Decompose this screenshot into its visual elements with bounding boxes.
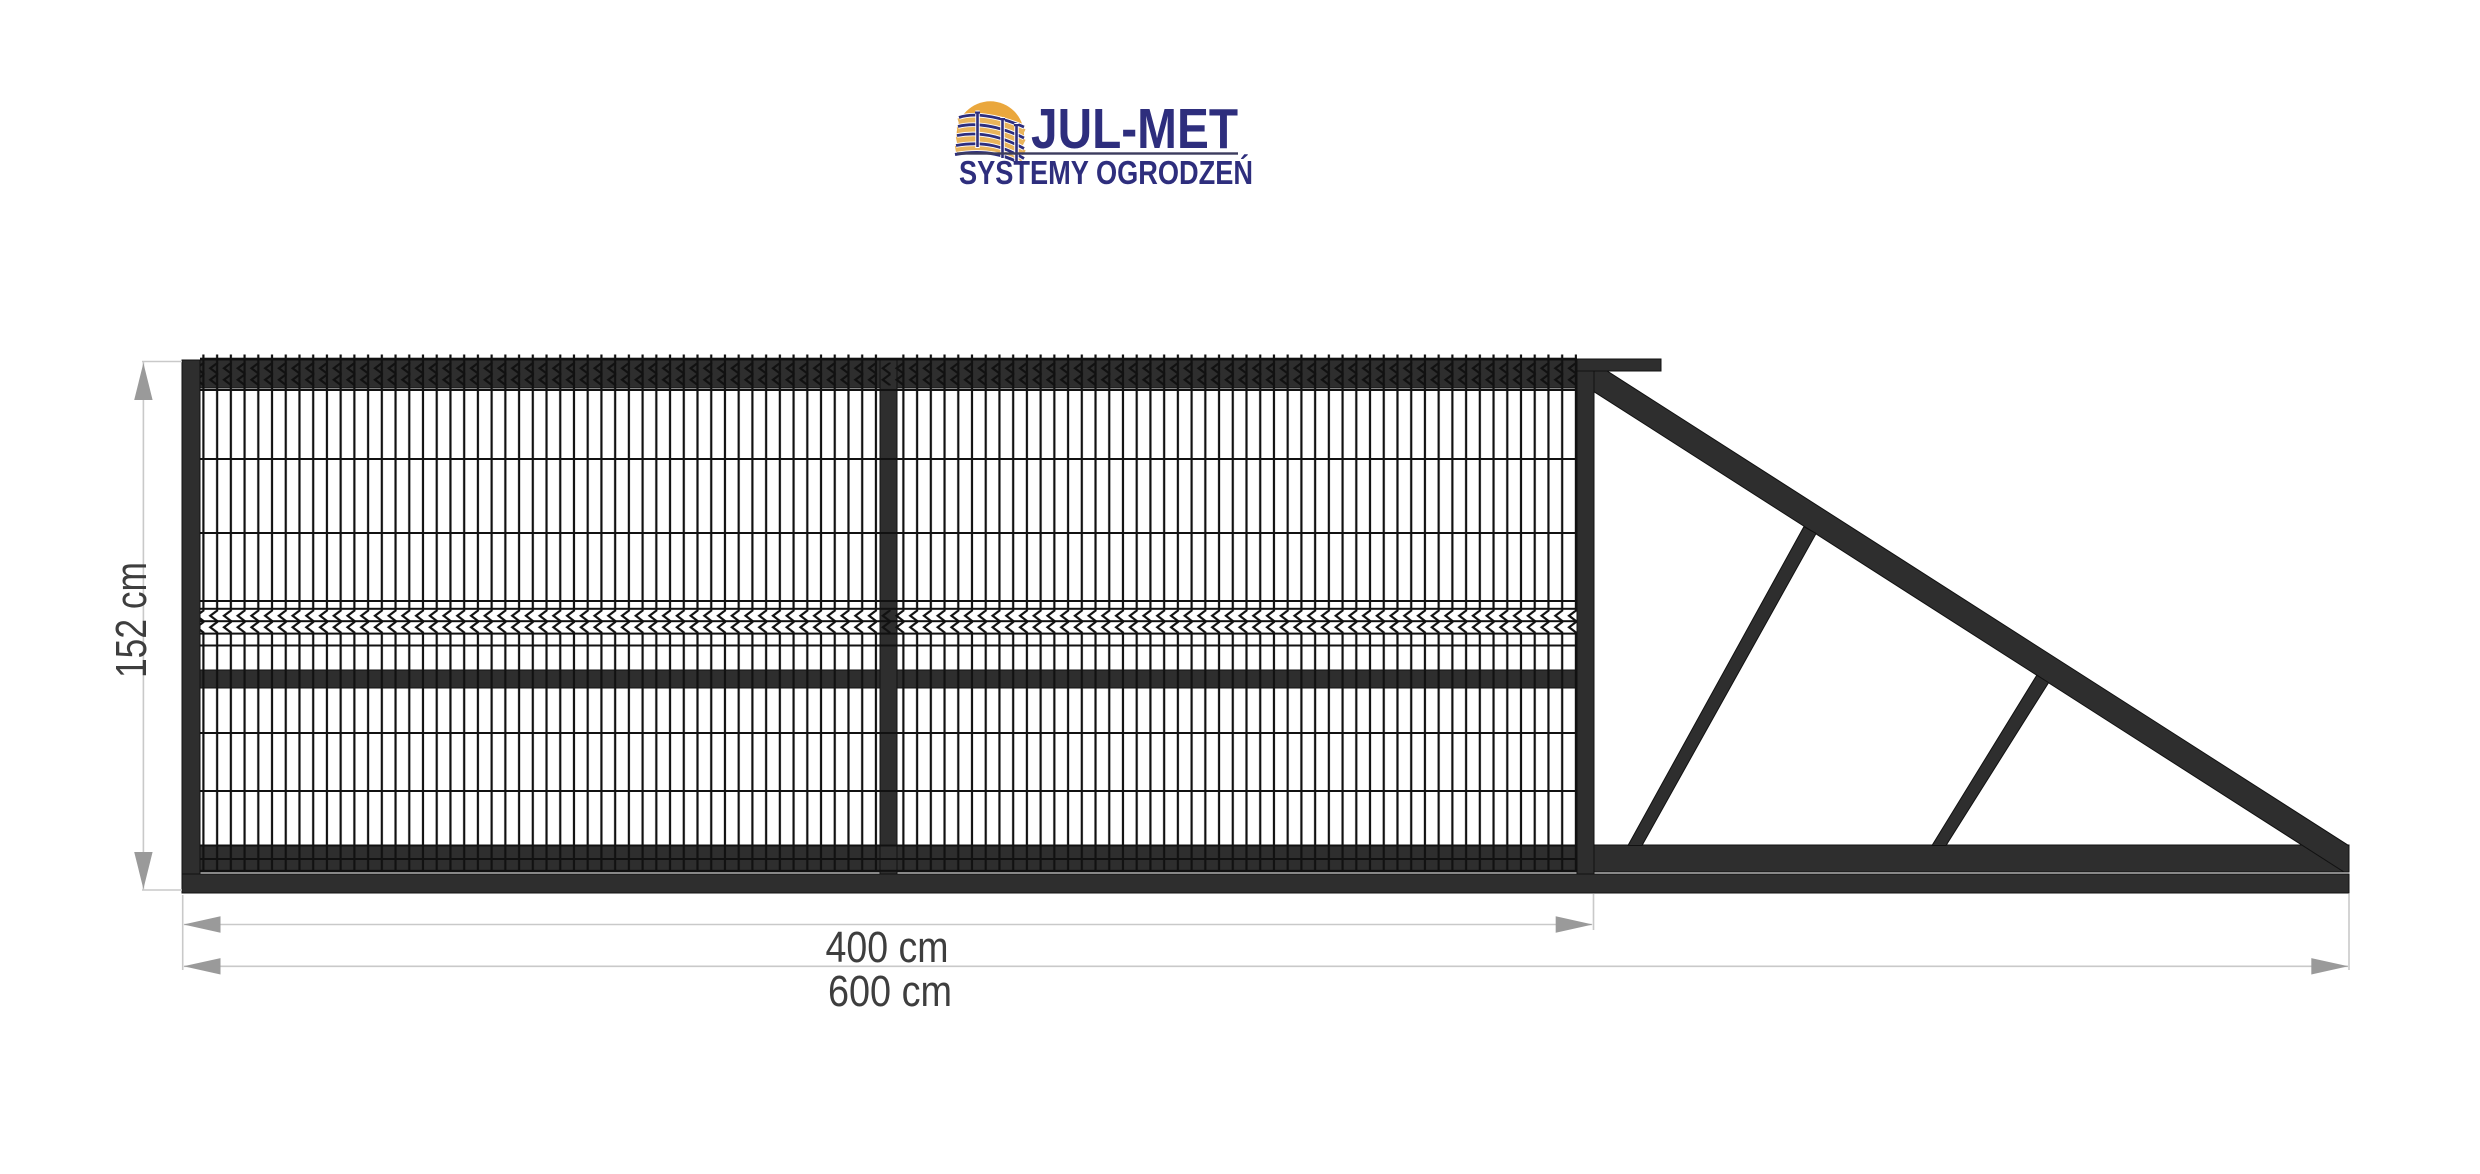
svg-text:SYSTEMY OGRODZEŃ: SYSTEMY OGRODZEŃ xyxy=(959,154,1253,191)
svg-text:400 cm: 400 cm xyxy=(826,923,949,972)
svg-text:JUL-MET: JUL-MET xyxy=(1031,97,1238,161)
svg-text:152 cm: 152 cm xyxy=(107,562,156,678)
svg-text:600 cm: 600 cm xyxy=(828,967,952,1016)
